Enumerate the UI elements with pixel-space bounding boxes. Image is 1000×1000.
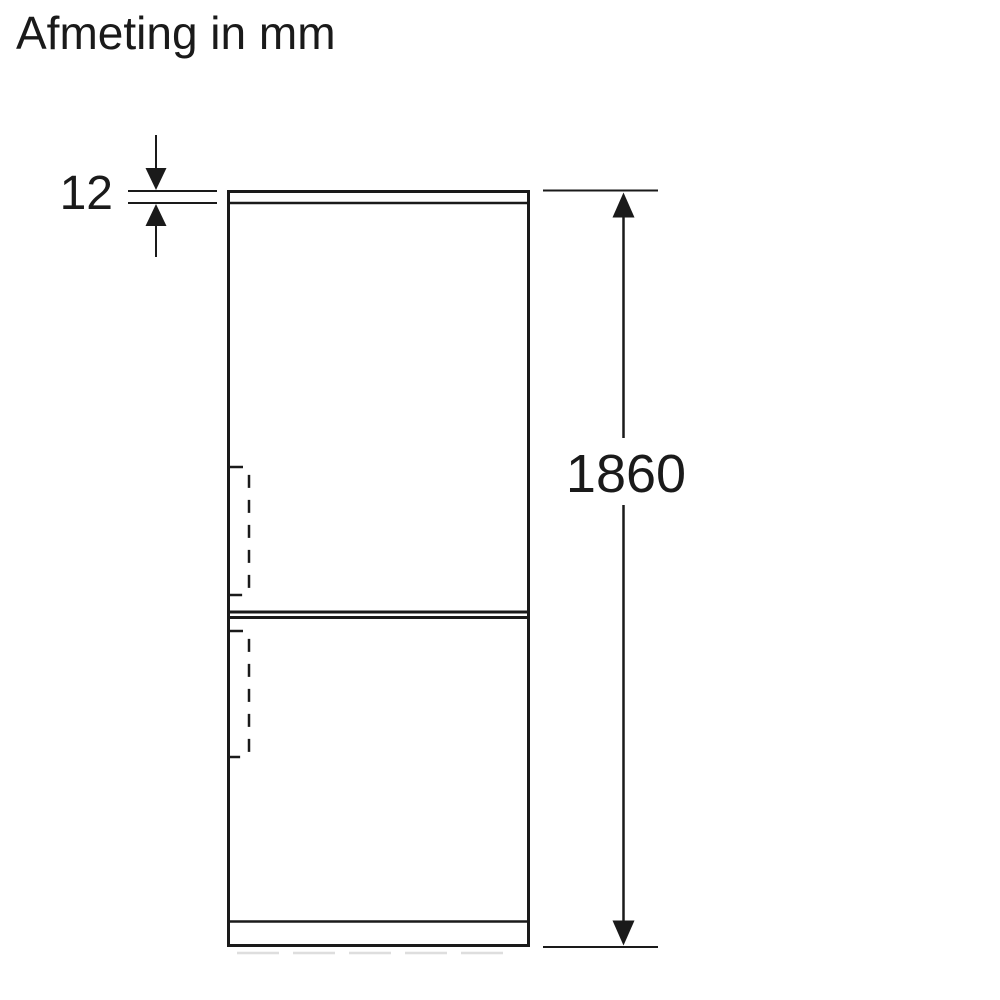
drawing-canvas: 12 1860 (0, 0, 1000, 1000)
lower-door-handle-dashed-line (230, 631, 249, 757)
upper-door-handle-dashed-line (230, 467, 249, 595)
appliance-outline (229, 192, 529, 954)
arrow-down-icon (613, 921, 635, 946)
dimension-top-label: 12 (60, 167, 113, 220)
cabinet-outline-rect (229, 192, 529, 946)
dimension-diagram: Afmeting in mm 12 (0, 0, 1000, 1000)
arrow-up-icon (613, 193, 635, 218)
dimension-height-label: 1860 (566, 444, 686, 504)
arrow-up-icon (146, 204, 167, 226)
dimension-top-thickness: 12 (60, 135, 217, 257)
arrow-down-icon (146, 168, 167, 190)
dimension-overall-height: 1860 (543, 191, 686, 948)
